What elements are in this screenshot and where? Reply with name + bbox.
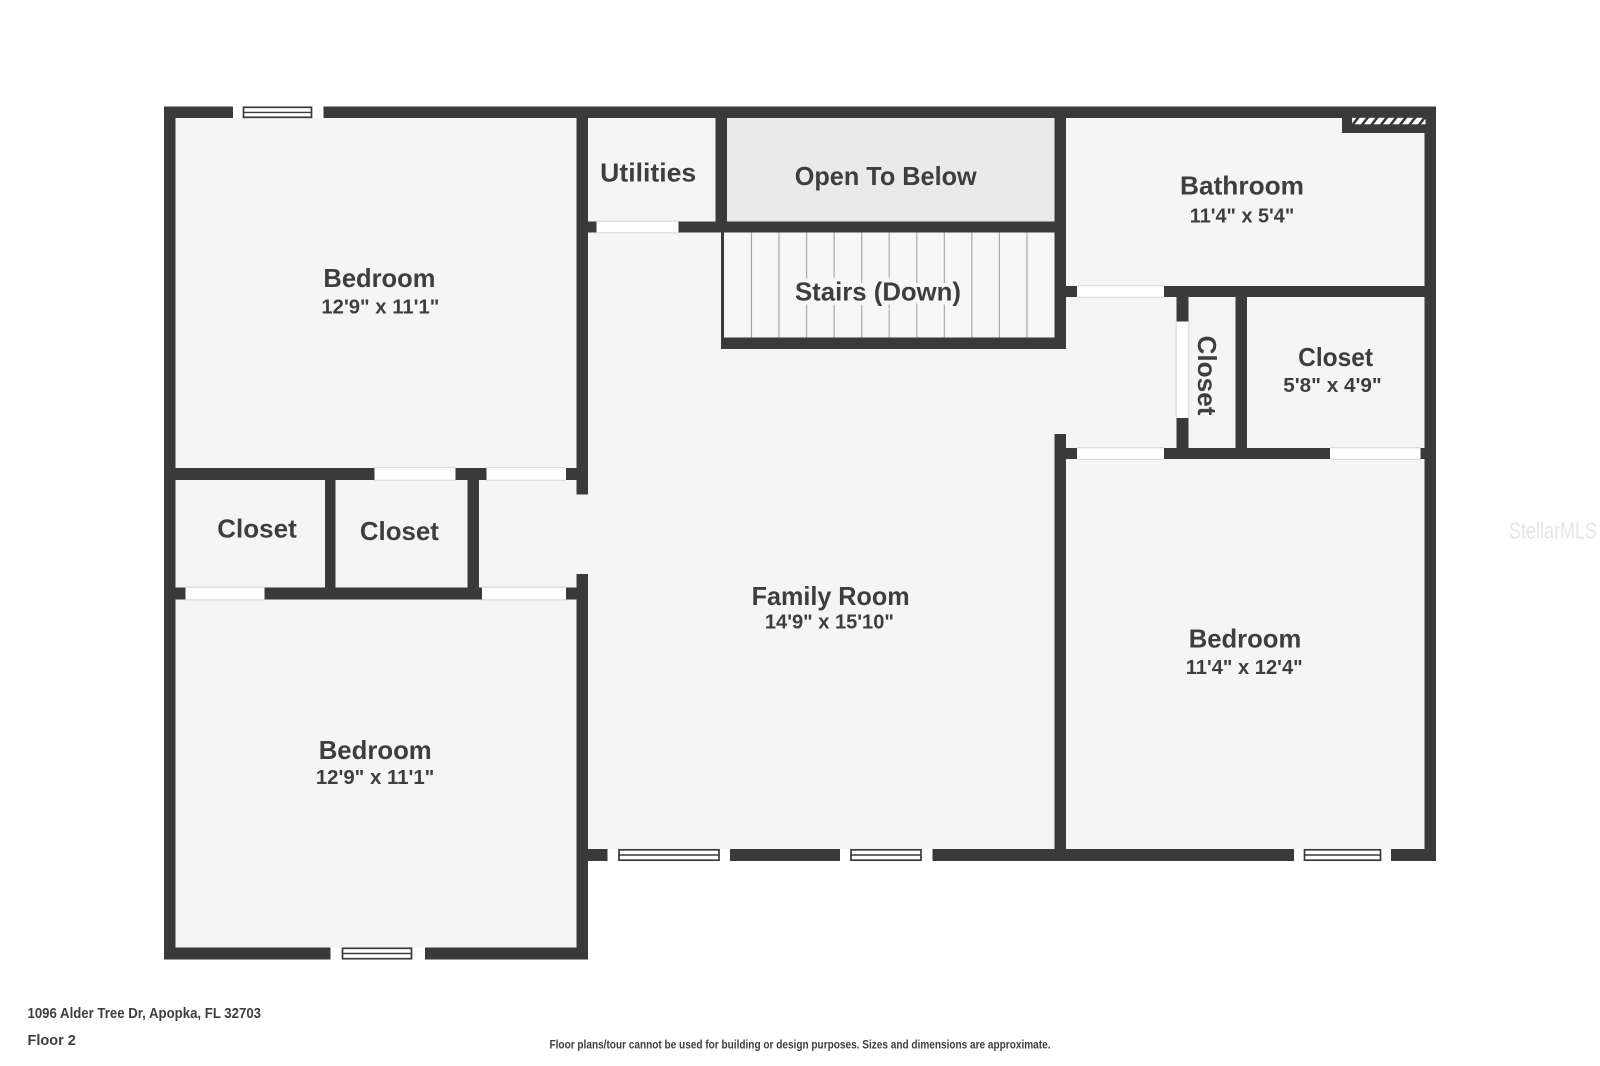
svg-text:StellarMLS: StellarMLS <box>1509 518 1597 544</box>
svg-text:Utilities: Utilities <box>600 158 696 188</box>
svg-text:Closet: Closet <box>217 514 297 544</box>
svg-text:5'8" x 4'9": 5'8" x 4'9" <box>1283 374 1382 397</box>
svg-text:12'9" x 11'1": 12'9" x 11'1" <box>321 296 439 319</box>
svg-text:Bedroom: Bedroom <box>323 263 435 293</box>
svg-text:Floor plans/tour cannot be use: Floor plans/tour cannot be used for buil… <box>550 1038 1051 1052</box>
svg-text:Closet: Closet <box>360 516 439 546</box>
svg-text:11'4" x 5'4": 11'4" x 5'4" <box>1190 205 1295 228</box>
svg-text:1096 Alder Tree Dr, Apopka, FL: 1096 Alder Tree Dr, Apopka, FL 32703 <box>28 1006 262 1022</box>
svg-text:12'9" x 11'1": 12'9" x 11'1" <box>316 766 435 789</box>
svg-text:Closet: Closet <box>1192 336 1222 416</box>
svg-text:Floor 2: Floor 2 <box>28 1033 76 1049</box>
svg-text:Bathroom: Bathroom <box>1180 171 1304 201</box>
svg-text:11'4" x 12'4": 11'4" x 12'4" <box>1186 656 1303 679</box>
svg-text:14'9" x 15'10": 14'9" x 15'10" <box>765 611 894 634</box>
svg-text:Closet: Closet <box>1298 342 1373 372</box>
svg-text:Open To Below: Open To Below <box>795 161 978 191</box>
svg-text:Family Room: Family Room <box>752 581 910 611</box>
svg-text:Bedroom: Bedroom <box>1189 624 1302 654</box>
svg-text:Bedroom: Bedroom <box>319 735 432 765</box>
svg-text:Stairs (Down): Stairs (Down) <box>795 277 961 307</box>
